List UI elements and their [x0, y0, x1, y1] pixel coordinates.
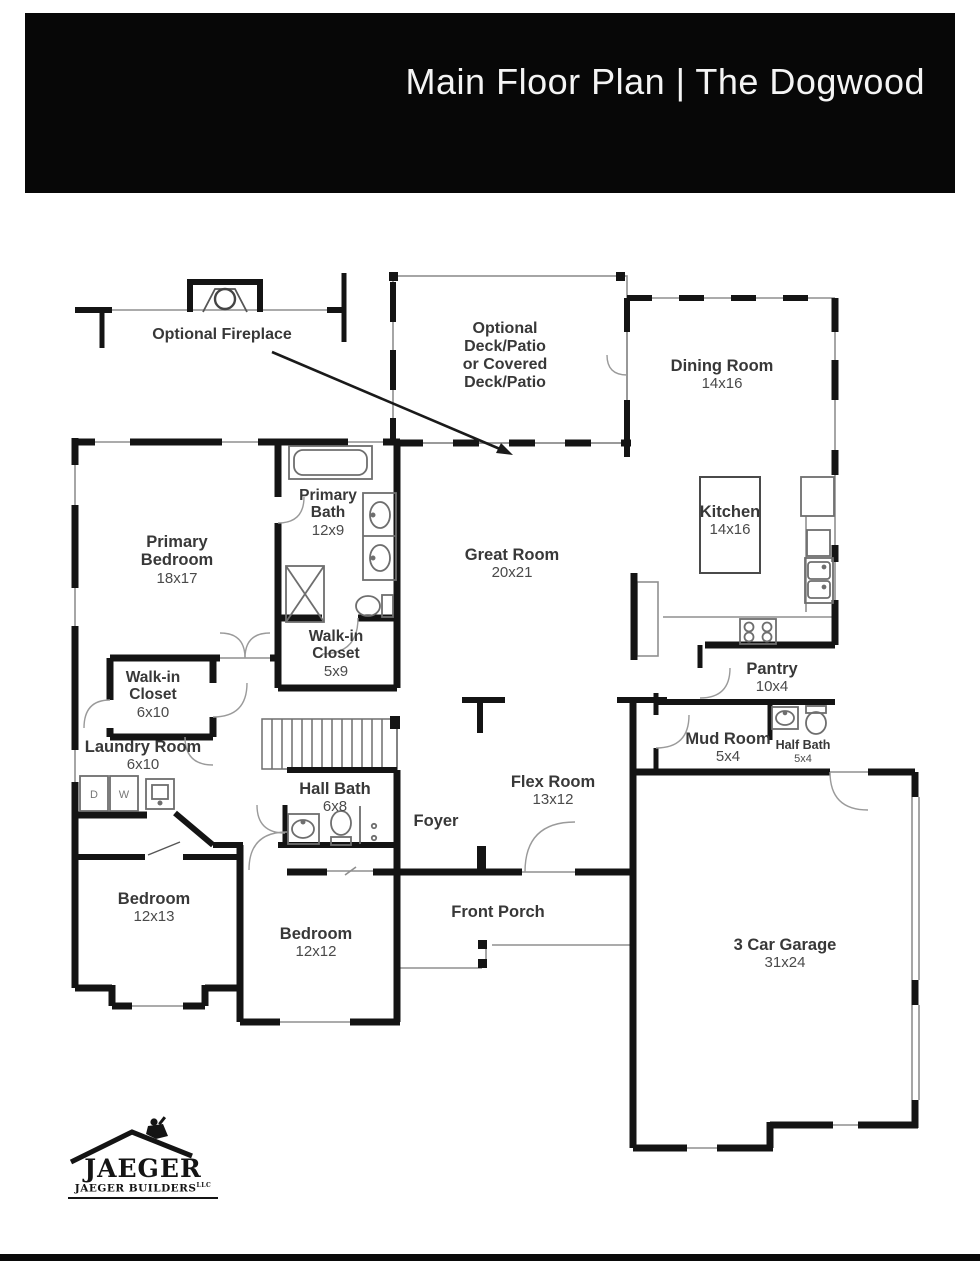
label-bedroom-12x13: Bedroom 12x13	[118, 890, 190, 926]
sink-hall-bath	[288, 814, 319, 844]
double-vanity	[363, 493, 396, 580]
label-primary-bedroom: Primary Bedroom 18x17	[141, 533, 213, 588]
label-primary-bath: Primary Bath 12x9	[299, 487, 357, 540]
label-half-bath: Half Bath 5x4	[776, 738, 831, 765]
label-optional-fireplace: Optional Fireplace	[152, 326, 292, 344]
label-walkin-closet-6x10: Walk-in Closet 6x10	[126, 669, 181, 722]
label-deck-patio: Optional Deck/Patio or Covered Deck/Pati…	[463, 320, 547, 392]
label-dining-room: Dining Room 14x16	[671, 357, 774, 393]
walls	[75, 273, 918, 1148]
sink-half-bath	[772, 707, 798, 729]
bathtub	[289, 446, 372, 479]
label-bedroom-12x12: Bedroom 12x12	[280, 925, 352, 961]
label-foyer: Foyer	[414, 812, 459, 830]
door-arcs	[84, 355, 868, 872]
stove	[740, 619, 776, 644]
washer-label: W	[119, 789, 130, 801]
logo-brand-text: JAEGER	[68, 1154, 218, 1183]
fireplace-symbol	[190, 282, 260, 312]
shower	[286, 566, 324, 622]
builder-logo: JAEGER JAEGER BUILDERSLLC	[68, 1112, 218, 1212]
label-kitchen: Kitchen 14x16	[700, 503, 761, 539]
floor-plan-page: Main Floor Plan | The Dogwood	[0, 0, 980, 1261]
logo-company-text: JAEGER BUILDERSLLC	[68, 1182, 218, 1199]
dishwasher	[807, 530, 830, 556]
label-flex-room: Flex Room 13x12	[511, 773, 595, 809]
dryer-label: D	[90, 789, 98, 801]
label-laundry-room: Laundry Room 6x10	[85, 738, 201, 774]
staircase	[262, 719, 397, 769]
kitchen-sink	[805, 558, 833, 603]
refrigerator	[801, 477, 834, 516]
roofer-icon	[146, 1116, 168, 1139]
floor-plan-drawing: D W	[0, 0, 980, 1261]
label-walkin-closet-5x9: Walk-in Closet 5x9	[309, 628, 364, 681]
thin-lines	[75, 276, 919, 1148]
footer-bar	[0, 1254, 980, 1261]
label-great-room: Great Room 20x21	[465, 546, 559, 582]
toilet-half-bath	[806, 706, 826, 734]
label-mud-room: Mud Room 5x4	[685, 730, 770, 766]
label-garage: 3 Car Garage 31x24	[734, 936, 837, 972]
label-pantry: Pantry 10x4	[746, 660, 797, 696]
label-hall-bath: Hall Bath 6x8	[299, 780, 371, 816]
label-front-porch: Front Porch	[451, 903, 545, 921]
toilet-primary	[356, 595, 393, 617]
